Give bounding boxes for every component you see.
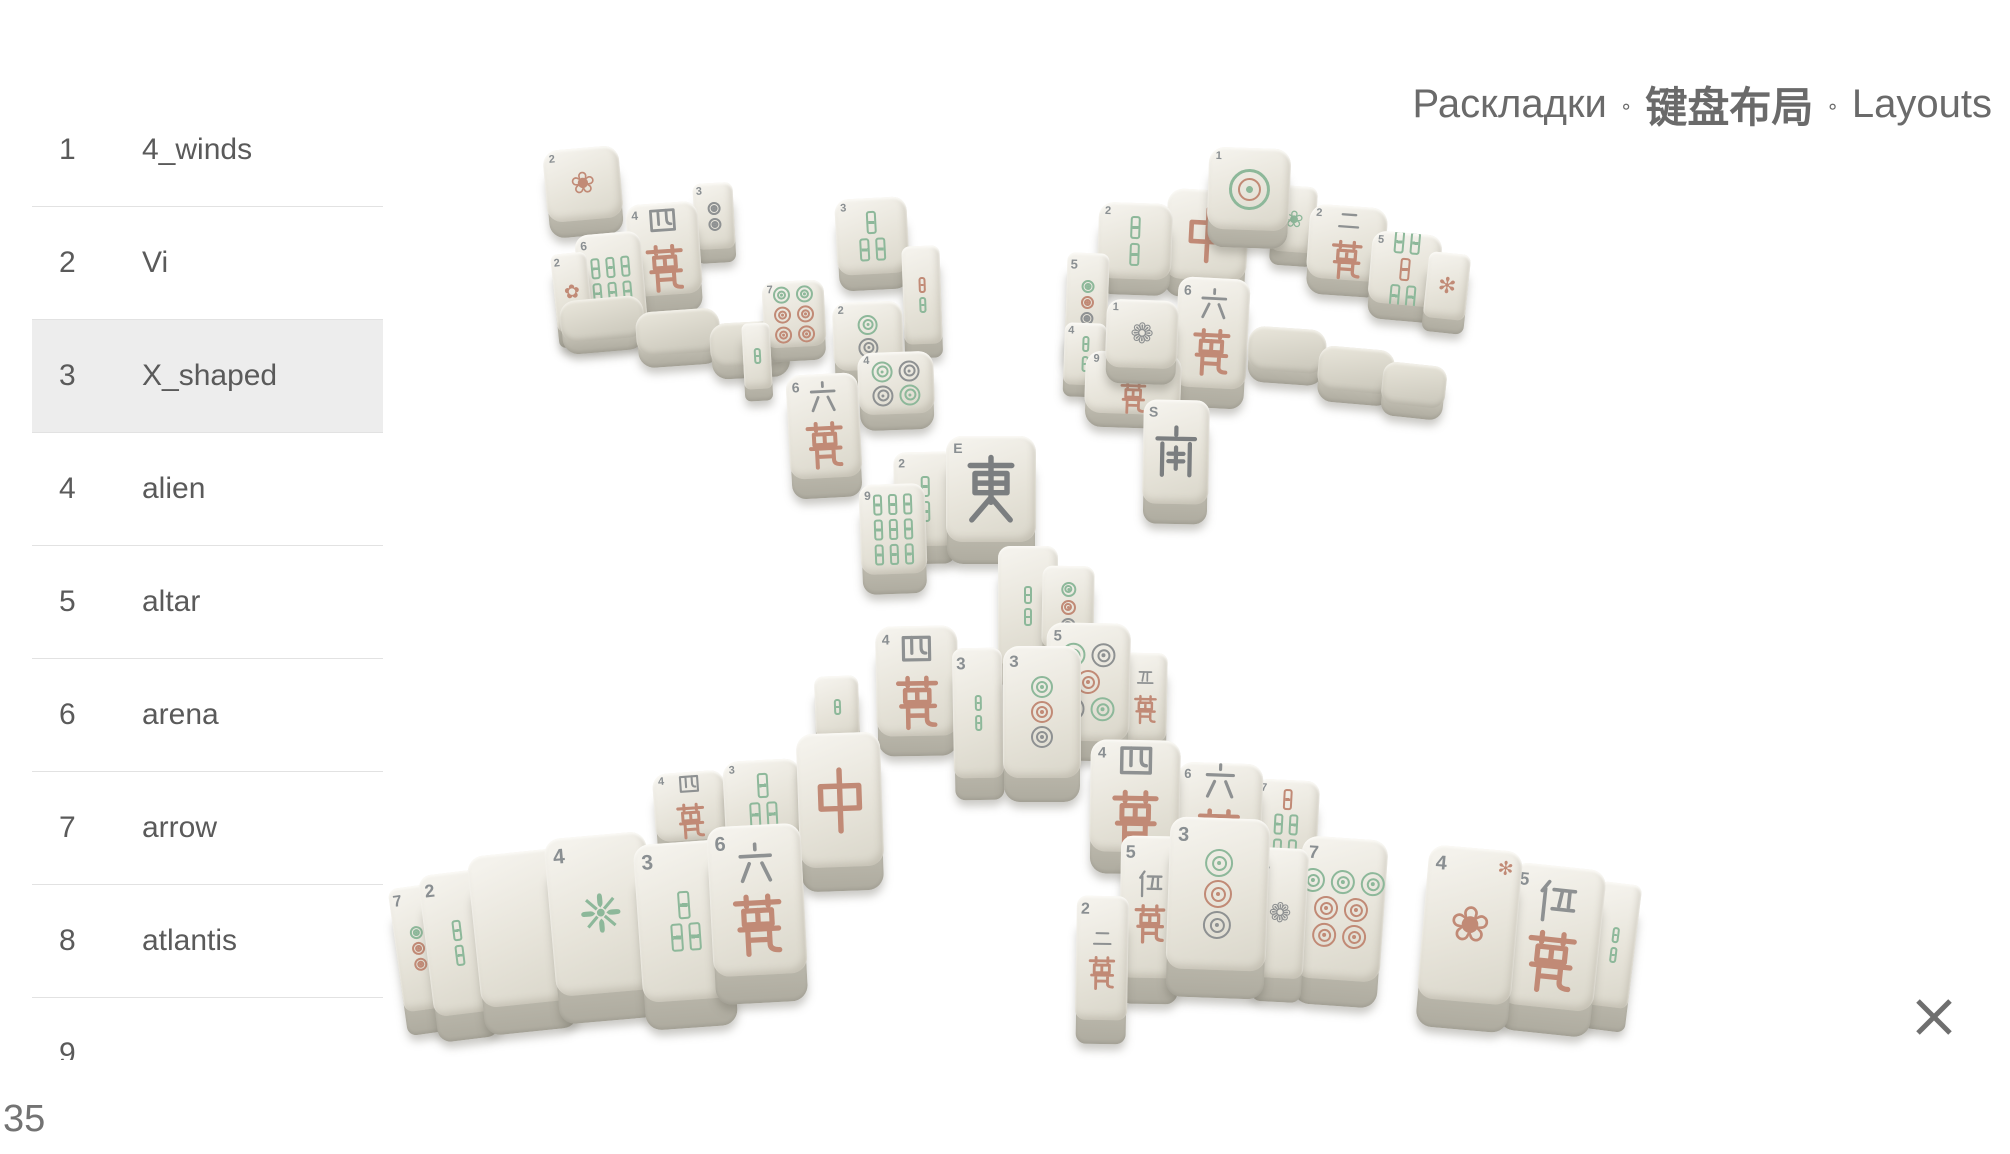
tile-face (998, 546, 1058, 666)
tile-face: 2 (1306, 203, 1389, 282)
tile-face: 3 (952, 648, 1004, 779)
tile-side (902, 259, 943, 358)
tile-index-label: 2 (1081, 902, 1090, 918)
tile-side (654, 786, 729, 859)
flower-art: ❁ (1130, 320, 1154, 349)
mahjong-tile-flora: 1❁ (1105, 299, 1179, 369)
mahjong-tile-sticks: 2 (893, 451, 957, 546)
tile-side (953, 670, 1004, 801)
tile-face: 2 (1075, 896, 1129, 1021)
tile-face (1164, 188, 1251, 282)
tile-face (1247, 325, 1328, 374)
tile-side (763, 293, 827, 362)
mahjong-tile-rings: 4 (857, 351, 935, 416)
tile-face: 2❀ (542, 145, 624, 223)
tile-side (710, 332, 791, 380)
layout-item-number: 1 (32, 133, 142, 167)
tile-face: 3 (692, 182, 735, 250)
tile-face: 4 (625, 201, 703, 298)
flower-art: ❈ (577, 886, 626, 943)
layout-item-name: arena (142, 698, 219, 732)
tile-face: 7 (1252, 778, 1321, 869)
tile-side (636, 319, 721, 369)
title-separator: ∘ (1826, 94, 1839, 119)
tile-side (999, 568, 1058, 688)
tile-index-label: 3 (641, 852, 654, 874)
tile-side (1122, 669, 1167, 758)
tile-index-label: 6 (714, 834, 726, 855)
tile-side (1379, 373, 1446, 421)
layout-item-name: X_shaped (142, 359, 277, 393)
tile-index-label: 5 (1126, 843, 1136, 861)
mahjong-tile-sticks (901, 245, 942, 344)
tile-index-label: 4 (863, 356, 870, 367)
tile-index-label: 1 (1112, 302, 1119, 313)
mahjong-tile-rings: 3 (1165, 816, 1270, 971)
tile-side (544, 161, 624, 239)
tile-index-label: 6 (791, 380, 800, 394)
mahjong-tile-char (796, 732, 885, 869)
layout-item-number: 8 (32, 924, 142, 958)
mahjong-tile-sticks (998, 546, 1058, 666)
mahjong-tile-rings: 7 (388, 884, 449, 1013)
tile-face: 5 (1499, 861, 1607, 1012)
flower-art: ❁ (1268, 899, 1292, 927)
tile-index-label: 7 (1308, 843, 1319, 862)
tile-side (552, 267, 595, 348)
layout-list-item[interactable]: 5altar (32, 546, 383, 659)
mahjong-tile-man: 2 (1306, 203, 1389, 282)
tile-face: 9 (1084, 350, 1182, 415)
tile-side (627, 219, 704, 316)
layout-list-item[interactable]: 3X_shaped (32, 320, 383, 433)
tile-side (470, 875, 579, 1036)
tile-index-label: 5 (1070, 257, 1078, 270)
tile-side (1075, 920, 1128, 1045)
tile-side (833, 317, 904, 387)
mahjong-tile-sticks (1586, 881, 1643, 1009)
mahjong-tile-flora: 1❁ (1251, 847, 1310, 980)
tile-index-label: 5 (1378, 234, 1385, 245)
tile-side (635, 867, 738, 1031)
tile-index-label: 6 (1184, 767, 1192, 780)
tile-side (547, 859, 660, 1025)
tile-side (1097, 218, 1172, 296)
layout-item-name: atlantis (142, 924, 237, 958)
tile-face: 4 (1063, 322, 1107, 385)
page-title: Раскладки∘键盘布局∘Layouts (1412, 74, 1992, 135)
tile-base (635, 307, 722, 357)
tile-index-label: 3 (840, 203, 847, 214)
tile-side (1004, 670, 1080, 802)
tile-index-label: 6 (1184, 282, 1193, 296)
layout-list-item[interactable]: 6arena (32, 659, 383, 772)
tile-index-label: 9 (1093, 354, 1100, 365)
mahjong-tile-sticks: 3 (722, 758, 804, 842)
tile-side (1165, 844, 1268, 999)
tile-side (815, 689, 860, 752)
tile-index-label: 2 (1277, 188, 1284, 199)
mahjong-tile-sticks: 9 (858, 483, 927, 575)
tile-side (421, 895, 501, 1044)
mahjong-tile-flora: 2❀ (542, 145, 624, 223)
tile-side (391, 907, 451, 1036)
tile-index-label: 9 (864, 489, 871, 501)
tile-face: S (1142, 399, 1210, 504)
title-en: Layouts (1852, 82, 1992, 127)
tile-face: 5 (1119, 835, 1181, 978)
tile-face (558, 294, 645, 343)
tile-face: 4❈ (543, 831, 658, 997)
title-zh: 键盘布局 (1645, 74, 1813, 135)
tile-side (1164, 206, 1249, 300)
tile-side (1090, 761, 1180, 875)
tile-index-label: E (953, 441, 962, 455)
tile-index-label: 7 (392, 894, 403, 911)
mahjong-tile-sticks: 2 (418, 869, 499, 1018)
mahjong-tile-rings (1041, 566, 1094, 649)
layout-list-item[interactable]: 2Vi (32, 207, 383, 320)
tile-index-label: 4 (1098, 745, 1107, 760)
tile-face: 4 (652, 770, 729, 843)
layout-item-number: 7 (32, 811, 142, 845)
mahjong-tile-man: 6 (1173, 276, 1251, 390)
layout-list-item[interactable]: 4alien (32, 433, 383, 546)
mahjong-tile-sticks: 5 (1367, 230, 1443, 308)
tile-index-label: 4 (631, 209, 639, 221)
layout-item-name: Vi (142, 246, 168, 280)
mahjong-tile-rings: 5 (1045, 622, 1131, 741)
tile-face (1316, 345, 1396, 395)
tile-index-label: 6 (580, 240, 588, 253)
tile-face: 3 (834, 196, 910, 276)
layout-item-number: 6 (32, 698, 142, 732)
tile-index-label: 2 (548, 154, 555, 165)
tile-face: 2✿ (550, 251, 594, 332)
tile-index-label: 2 (424, 882, 436, 901)
mahjong-tile-char: E (946, 436, 1036, 542)
tile-face (635, 307, 722, 357)
mahjong-tile-flora: 2✿ (550, 251, 594, 332)
layout-item-name: 4_winds (142, 133, 252, 167)
layout-sidebar: 14_winds2Vi3X_shaped4alien5altar6arena7a… (32, 94, 383, 1060)
tile-face: 2 (832, 301, 904, 371)
flower-art: ✻ (1437, 274, 1458, 298)
tile-face (741, 322, 772, 389)
tile-face: 4 (875, 625, 959, 736)
tile-side (709, 851, 809, 1006)
layout-list-item[interactable]: 7arrow (32, 772, 383, 885)
tile-side (1583, 905, 1639, 1033)
mahjong-tile-rings: 3 (692, 182, 735, 250)
mahjong-tile-flora: 4❀✻ (1416, 844, 1523, 1006)
flower-art: ❀ (569, 168, 597, 200)
close-icon (1903, 986, 1965, 1048)
tile-side (1246, 337, 1325, 386)
tile-face: 6 (706, 823, 808, 978)
tile-face: 4 (857, 351, 935, 416)
mahjong-tile-sticks: 4 (1063, 322, 1107, 385)
tile-face: 5 (1045, 622, 1131, 741)
tile-face: 5 (1064, 252, 1109, 351)
tile-side (947, 458, 1035, 564)
mahjong-tile-flora: ✻ (1423, 251, 1472, 321)
mahjong-tile-man: 2 (1075, 896, 1129, 1021)
mahjong-tile-man: 4 (625, 201, 703, 298)
tile-side (1042, 582, 1094, 665)
tile-index-label: 1 (1260, 853, 1270, 870)
layout-item-name: altar (142, 585, 200, 619)
tile-index-label: 4 (882, 632, 890, 646)
layout-item-number: 4 (32, 472, 142, 506)
layout-count: 35 (3, 1098, 45, 1141)
mahjong-tile-rings: 7 (1293, 835, 1389, 983)
tile-side (1415, 872, 1520, 1033)
mahjong-tile-flora: 2❀ (1270, 185, 1318, 254)
flower-season-mark: ✻ (1497, 859, 1515, 879)
tile-side (1063, 334, 1106, 397)
flower-art: ✿ (563, 282, 581, 303)
tile-face (796, 732, 885, 869)
tile-side (797, 756, 884, 893)
tile-face: 7 (761, 279, 826, 348)
layout-item-name: alien (142, 472, 205, 506)
tile-face: 2 (418, 869, 499, 1018)
tile-face: 2❀ (1270, 185, 1318, 254)
tile-index-label: 7 (766, 285, 773, 296)
tile-side (1250, 871, 1308, 1003)
mahjong-tile-sticks: 7 (1252, 778, 1321, 869)
title-ru: Раскладки (1412, 82, 1606, 127)
tile-side (858, 367, 935, 432)
tile-face: 7 (1293, 835, 1389, 983)
mahjong-tile-blank (466, 847, 577, 1008)
tile-face: 3 (1165, 816, 1270, 971)
tile-index-label: 4 (1435, 853, 1448, 874)
mahjong-tile-sticks: 2 (1097, 202, 1174, 281)
layout-list-item[interactable]: 8atlantis (32, 885, 383, 998)
tile-face (814, 675, 860, 738)
mahjong-tile-man: 6 (785, 372, 862, 480)
tile-index-label: 3 (1178, 824, 1190, 844)
tile-face: 7 (388, 884, 449, 1013)
tile-face: 3 (1003, 646, 1081, 778)
tile-base (709, 320, 791, 368)
close-button[interactable] (1903, 986, 1965, 1048)
tile-face (1380, 361, 1448, 409)
tile-side (560, 306, 646, 355)
tile-side (876, 645, 958, 756)
tile-index-label: 5 (1053, 628, 1062, 643)
tile-face: ✻ (1423, 251, 1472, 321)
tile-side (836, 212, 910, 292)
mahjong-tile-sticks (814, 675, 860, 738)
mahjong-tile-flora: 4❈ (543, 831, 658, 997)
tile-face (901, 245, 942, 344)
mahjong-tile-char: S (1142, 399, 1210, 504)
tile-face: E (946, 436, 1036, 542)
mahjong-tile-man: 4 (875, 625, 959, 736)
tile-side (894, 469, 956, 564)
tile-face: 6 (785, 372, 862, 480)
tile-side (1366, 246, 1441, 324)
tile-index-label: 4 (1068, 325, 1075, 336)
tile-side (1084, 364, 1180, 429)
tile-base (1380, 361, 1448, 409)
mahjong-tile-man: 6 (706, 823, 808, 978)
mahjong-tile-man: 9 (1084, 350, 1182, 415)
mahjong-tile-char (1164, 188, 1251, 282)
mahjong-tile-sticks: 3 (952, 648, 1004, 779)
tile-index-label: 7 (1261, 783, 1268, 794)
tile-index-label: 1 (1215, 151, 1222, 162)
tile-index-label: 2 (898, 457, 905, 469)
tile-face (1586, 881, 1643, 1009)
tile-face: 6 (1174, 762, 1264, 867)
tile-index-label: 2 (1316, 207, 1323, 218)
tile-side (1064, 266, 1109, 365)
tile-side (1251, 796, 1318, 887)
mahjong-tile-sticks: 3 (834, 196, 910, 276)
layout-list-item[interactable]: 9 (32, 998, 383, 1060)
layout-item-number: 2 (32, 246, 142, 280)
layout-item-number: 9 (32, 1037, 142, 1060)
tile-side (860, 503, 928, 595)
tile-side (1173, 296, 1249, 410)
tile-face: 6 (574, 230, 648, 329)
layout-list-item[interactable]: 14_winds (32, 94, 383, 207)
tile-side (724, 776, 805, 860)
tile-base (558, 294, 645, 343)
tile-side (1119, 861, 1180, 1004)
tile-face (466, 847, 577, 1008)
mahjong-tile-rings: 5 (1064, 252, 1109, 351)
tile-face: 3 (633, 839, 738, 1003)
tile-side (1045, 642, 1129, 761)
mahjong-tile-sticks: 3 (633, 839, 738, 1003)
layout-item-name: arrow (142, 811, 217, 845)
mahjong-tile-sticks: 6 (574, 230, 648, 329)
tile-side (1305, 219, 1386, 298)
tile-index-label: 2 (1105, 206, 1112, 217)
tile-face: 1❁ (1251, 847, 1310, 980)
tile-side (1207, 165, 1290, 250)
tile-side (1174, 782, 1262, 887)
tile-index-label: 4 (658, 777, 665, 788)
tile-side (1422, 265, 1470, 335)
mahjong-tile-sticks (741, 322, 772, 389)
tile-index-label: 2 (838, 306, 845, 317)
tile-index-label: 3 (956, 655, 966, 672)
tile-index-label: 4 (552, 846, 565, 868)
tile-side (1316, 357, 1394, 407)
tile-index-label: S (1149, 405, 1159, 419)
tile-base (1316, 345, 1396, 395)
tile-face: 4❀✻ (1416, 844, 1523, 1006)
mahjong-tile-plate: 1 (1207, 147, 1292, 232)
tile-face: 3 (722, 758, 804, 842)
tile-index-label: 3 (728, 765, 735, 776)
mahjong-tile-man: 5 (1499, 861, 1607, 1012)
mahjong-tile-man (1122, 653, 1168, 742)
tile-face (709, 320, 791, 368)
tile-side (1142, 419, 1208, 524)
tile-side (1292, 861, 1386, 1009)
tile-index-label: 3 (1009, 653, 1018, 670)
tile-side (693, 196, 736, 264)
tile-side (1269, 199, 1317, 268)
title-separator: ∘ (1620, 94, 1633, 119)
tile-face: 9 (858, 483, 927, 575)
tile-face (1122, 653, 1168, 742)
tile-base (1247, 325, 1328, 374)
layout-item-number: 5 (32, 585, 142, 619)
tile-face: 1 (1207, 147, 1292, 232)
tile-face (1041, 566, 1094, 649)
mahjong-tile-man: 6 (1174, 762, 1264, 867)
tile-index-label: 2 (553, 258, 560, 270)
tile-side (576, 248, 649, 347)
tile-side (787, 392, 863, 500)
tile-index-label: 3 (696, 187, 703, 198)
mahjong-tile-man: 4 (1089, 739, 1181, 853)
flower-art: ❀ (1447, 899, 1492, 951)
tile-side (742, 334, 773, 401)
tile-face: 4 (1089, 739, 1181, 853)
tile-face: 2 (1097, 202, 1174, 281)
mahjong-tile-rings: 2 (832, 301, 904, 371)
tile-face: 1❁ (1105, 299, 1179, 369)
tile-face: 6 (1173, 276, 1251, 390)
tile-side (1105, 315, 1178, 385)
flower-art: ❀ (1284, 207, 1305, 231)
tile-index-label: 5 (1519, 869, 1531, 888)
tile-side (1497, 887, 1603, 1038)
layout-item-number: 3 (32, 359, 142, 393)
mahjong-tile-man: 5 (1119, 835, 1181, 978)
tile-face: 5 (1367, 230, 1443, 308)
tile-face: 2 (893, 451, 957, 546)
mahjong-tile-rings: 7 (761, 279, 826, 348)
mahjong-tile-rings: 3 (1003, 646, 1081, 778)
mahjong-tile-man: 4 (652, 770, 729, 843)
